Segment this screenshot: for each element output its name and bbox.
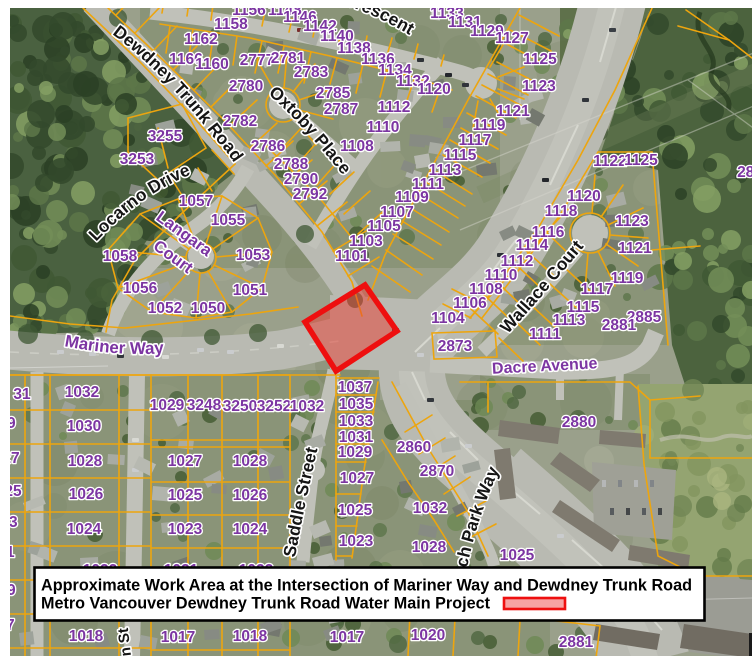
svg-text:1127: 1127 — [495, 30, 529, 47]
svg-text:1057: 1057 — [179, 193, 213, 210]
svg-text:1122: 1122 — [593, 153, 627, 170]
svg-text:1114: 1114 — [516, 237, 549, 254]
svg-text:3253: 3253 — [120, 151, 155, 168]
svg-text:2777: 2777 — [240, 52, 274, 69]
svg-text:31: 31 — [13, 386, 31, 403]
svg-text:1032: 1032 — [290, 398, 324, 415]
svg-text:1125: 1125 — [523, 51, 557, 68]
svg-text:Approximate Work Area at the I: Approximate Work Area at the Intersectio… — [41, 576, 692, 595]
svg-text:1029: 1029 — [150, 397, 185, 414]
svg-text:1025: 1025 — [338, 502, 373, 519]
svg-text:1017: 1017 — [330, 629, 364, 646]
svg-text:2860: 2860 — [397, 439, 431, 456]
svg-text:2870: 2870 — [420, 463, 454, 480]
svg-text:1162: 1162 — [184, 31, 218, 48]
svg-text:1123: 1123 — [522, 78, 556, 95]
svg-text:1112: 1112 — [378, 99, 411, 116]
svg-text:1027: 1027 — [168, 453, 202, 470]
svg-text:1119: 1119 — [611, 270, 644, 287]
svg-text:2785: 2785 — [316, 85, 351, 102]
svg-text:1024: 1024 — [67, 521, 102, 538]
svg-text:1110: 1110 — [367, 119, 400, 136]
svg-text:1026: 1026 — [69, 486, 104, 503]
svg-text:1018: 1018 — [233, 628, 268, 645]
svg-text:1108: 1108 — [340, 138, 374, 155]
svg-text:1020: 1020 — [411, 627, 445, 644]
svg-text:1035: 1035 — [339, 396, 374, 413]
svg-text:1033: 1033 — [339, 413, 374, 430]
svg-text:1055: 1055 — [211, 212, 246, 229]
svg-text:1032: 1032 — [65, 384, 99, 401]
svg-text:1125: 1125 — [624, 152, 658, 169]
svg-text:1123: 1123 — [615, 213, 649, 230]
svg-text:1050: 1050 — [191, 300, 225, 317]
svg-text:3250: 3250 — [223, 398, 257, 415]
svg-text:2783: 2783 — [294, 64, 329, 81]
svg-text:1028: 1028 — [233, 453, 268, 470]
svg-text:1058: 1058 — [103, 248, 138, 265]
svg-text:1158: 1158 — [214, 16, 248, 33]
svg-text:1118: 1118 — [545, 203, 578, 220]
svg-text:1056: 1056 — [123, 280, 158, 297]
svg-text:1117: 1117 — [581, 281, 614, 298]
svg-text:1111: 1111 — [529, 326, 561, 343]
svg-text:1027: 1027 — [340, 470, 374, 487]
svg-text:1028: 1028 — [412, 539, 447, 556]
svg-text:2792: 2792 — [293, 186, 327, 203]
svg-text:2782: 2782 — [223, 113, 257, 130]
svg-text:2786: 2786 — [251, 138, 286, 155]
svg-text:1037: 1037 — [338, 379, 372, 396]
svg-text:1029: 1029 — [338, 444, 373, 461]
svg-text:1025: 1025 — [500, 547, 535, 564]
svg-text:1024: 1024 — [233, 521, 268, 538]
svg-text:1025: 1025 — [168, 487, 203, 504]
svg-text:2780: 2780 — [229, 78, 263, 95]
svg-text:2873: 2873 — [438, 338, 473, 355]
svg-text:1023: 1023 — [168, 521, 203, 538]
svg-text:1026: 1026 — [233, 487, 268, 504]
svg-text:1120: 1120 — [417, 81, 451, 98]
svg-text:2881: 2881 — [602, 317, 637, 334]
svg-text:Metro Vancouver Dewdney Trunk: Metro Vancouver Dewdney Trunk Road Water… — [41, 594, 490, 613]
svg-text:1052: 1052 — [148, 300, 182, 317]
svg-text:1032: 1032 — [413, 500, 447, 517]
svg-text:2881: 2881 — [559, 634, 594, 651]
svg-text:1017: 1017 — [161, 629, 195, 646]
svg-text:1160: 1160 — [195, 56, 229, 73]
svg-text:1030: 1030 — [67, 418, 101, 435]
svg-text:1023: 1023 — [339, 533, 374, 550]
svg-text:1101: 1101 — [335, 248, 369, 265]
svg-text:2880: 2880 — [562, 414, 596, 431]
svg-text:2787: 2787 — [324, 101, 358, 118]
svg-text:1051: 1051 — [233, 282, 268, 299]
svg-text:1104: 1104 — [431, 310, 465, 327]
svg-text:1053: 1053 — [236, 247, 271, 264]
svg-text:3252: 3252 — [257, 398, 291, 415]
svg-text:1028: 1028 — [68, 453, 103, 470]
svg-text:3248: 3248 — [187, 397, 222, 414]
svg-text:3255: 3255 — [148, 128, 183, 145]
svg-text:1018: 1018 — [69, 628, 104, 645]
svg-text:1121: 1121 — [618, 240, 652, 257]
